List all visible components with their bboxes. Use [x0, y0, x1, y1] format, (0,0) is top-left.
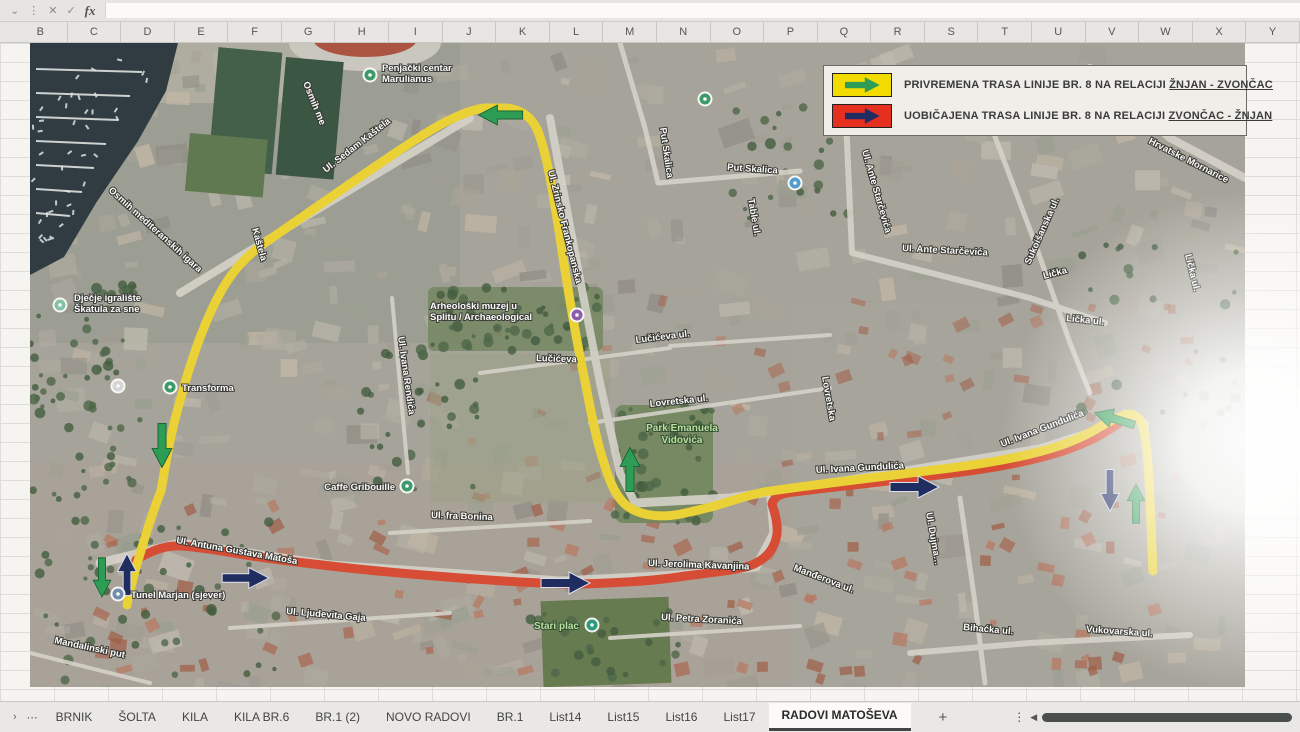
column-header-N[interactable]: N [657, 22, 711, 42]
poi-label: Splitu / Archaeological [430, 312, 532, 323]
tab-overflow-icon[interactable]: ⋯ [22, 711, 43, 724]
sheet-tab-list14[interactable]: List14 [536, 703, 594, 731]
column-header-E[interactable]: E [175, 22, 229, 42]
insert-function-icon[interactable]: fx [85, 3, 96, 19]
park-label: Park Emanuela [646, 423, 718, 434]
tab-menu-icon[interactable]: ⋮ [1013, 710, 1025, 724]
park-label: Vidovića [662, 435, 703, 446]
column-header-H[interactable]: H [335, 22, 389, 42]
scroll-left-icon[interactable]: ◀ [1030, 712, 1037, 723]
column-header-S[interactable]: S [925, 22, 979, 42]
column-header-J[interactable]: J [443, 22, 497, 42]
sheet-tab-bar: › ⋯ BRNIKŠOLTAKILAKILA BR.6BR.1 (2)NOVO … [0, 701, 1300, 732]
legend-arrow-icon [835, 75, 889, 95]
menu-dots-icon: ⋮ [28, 0, 39, 22]
sheet-tab-br-1-2-[interactable]: BR.1 (2) [302, 703, 373, 731]
excel-window: { "chrome": { "icons": { "name_box_chevr… [0, 0, 1300, 731]
legend-swatch [832, 73, 892, 97]
column-header-B[interactable]: B [14, 22, 68, 42]
column-header-Y[interactable]: Y [1246, 22, 1300, 42]
horizontal-scrollbar[interactable] [1042, 713, 1292, 722]
column-header-D[interactable]: D [121, 22, 175, 42]
map-legend: PRIVREMENA TRASA LINIJE BR. 8 NA RELACIJ… [823, 65, 1247, 136]
column-header-M[interactable]: M [603, 22, 657, 42]
column-header-W[interactable]: W [1139, 22, 1193, 42]
column-header-X[interactable]: X [1193, 22, 1247, 42]
column-header-L[interactable]: L [550, 22, 604, 42]
sheet-tab-br-1[interactable]: BR.1 [484, 703, 537, 731]
legend-arrow-icon [835, 106, 889, 126]
poi-label: Transforma [182, 383, 234, 394]
column-headers: BCDEFGHIJKLMNOPQRSTUVWXY [0, 22, 1300, 43]
column-header-O[interactable]: O [711, 22, 765, 42]
legend-text: PRIVREMENA TRASA LINIJE BR. 8 NA RELACIJ… [904, 79, 1273, 91]
column-header-I[interactable]: I [389, 22, 443, 42]
column-header-C[interactable]: C [68, 22, 122, 42]
legend-row-2: UOBIČAJENA TRASA LINIJE BR. 8 NA RELACIJ… [832, 104, 1238, 128]
poi-label: Caffe Gribouille [324, 482, 395, 493]
poi-label: Dječje igralište [74, 293, 141, 304]
sheet-grid[interactable]: Osmih meOsmih mediteranskih igaraUl. Sed… [0, 43, 1300, 701]
poi-label: Arheološki muzej u [430, 301, 517, 312]
street-label: Ul. fra Bonina [431, 510, 494, 523]
poi-label: Marulianus [382, 74, 432, 85]
poi-label: Škatula za sne [74, 303, 139, 315]
column-header-Q[interactable]: Q [818, 22, 872, 42]
cancel-icon[interactable]: ✕ [48, 0, 57, 22]
add-sheet-button[interactable]: + [931, 709, 956, 726]
legend-swatch [832, 104, 892, 128]
sheet-tab-brnik[interactable]: BRNIK [43, 703, 106, 731]
legend-text: UOBIČAJENA TRASA LINIJE BR. 8 NA RELACIJ… [904, 110, 1272, 122]
sheet-tab-radovi-mato-eva[interactable]: RADOVI MATOŠEVA [769, 703, 911, 731]
street-label: Lučićeva [536, 353, 578, 365]
sheet-tab-list16[interactable]: List16 [652, 703, 710, 731]
column-header-V[interactable]: V [1086, 22, 1140, 42]
poi-poi-skalica-2 [788, 176, 803, 191]
sheet-tab-list17[interactable]: List17 [710, 703, 768, 731]
column-header-P[interactable]: P [764, 22, 818, 42]
column-header-K[interactable]: K [496, 22, 550, 42]
legend-row-1: PRIVREMENA TRASA LINIJE BR. 8 NA RELACIJ… [832, 73, 1238, 97]
sheet-tab-kila[interactable]: KILA [169, 703, 221, 731]
satellite-basemap: Osmih meOsmih mediteranskih igaraUl. Sed… [30, 43, 1245, 687]
tab-nav-icon[interactable]: › [8, 711, 22, 723]
poi-label: Penjački centar [382, 63, 452, 74]
poi-label: Stari plac [534, 621, 579, 632]
sheet-tab-kila-br-6[interactable]: KILA BR.6 [221, 703, 302, 731]
formula-input[interactable] [105, 3, 1300, 18]
sheet-tab-novo-radovi[interactable]: NOVO RADOVI [373, 703, 484, 731]
column-header-R[interactable]: R [871, 22, 925, 42]
name-box-dropdown-icon[interactable]: ⌄ [10, 0, 19, 22]
map-image[interactable]: Osmih meOsmih mediteranskih igaraUl. Sed… [30, 43, 1245, 687]
formula-bar: ⌄ ⋮ ✕ ✓ fx [0, 0, 1300, 22]
poi-label: Tunel Marjan (sjever) [131, 590, 225, 601]
column-header-T[interactable]: T [978, 22, 1032, 42]
enter-icon[interactable]: ✓ [66, 0, 75, 22]
column-header-G[interactable]: G [282, 22, 336, 42]
poi-poi-skalice [698, 92, 713, 107]
column-header-F[interactable]: F [228, 22, 282, 42]
sheet-tab--olta[interactable]: ŠOLTA [105, 703, 169, 731]
column-header-U[interactable]: U [1032, 22, 1086, 42]
sheet-tab-list15[interactable]: List15 [594, 703, 652, 731]
poi-poi-field [111, 379, 126, 394]
tab-strip: BRNIKŠOLTAKILAKILA BR.6BR.1 (2)NOVO RADO… [43, 703, 911, 731]
